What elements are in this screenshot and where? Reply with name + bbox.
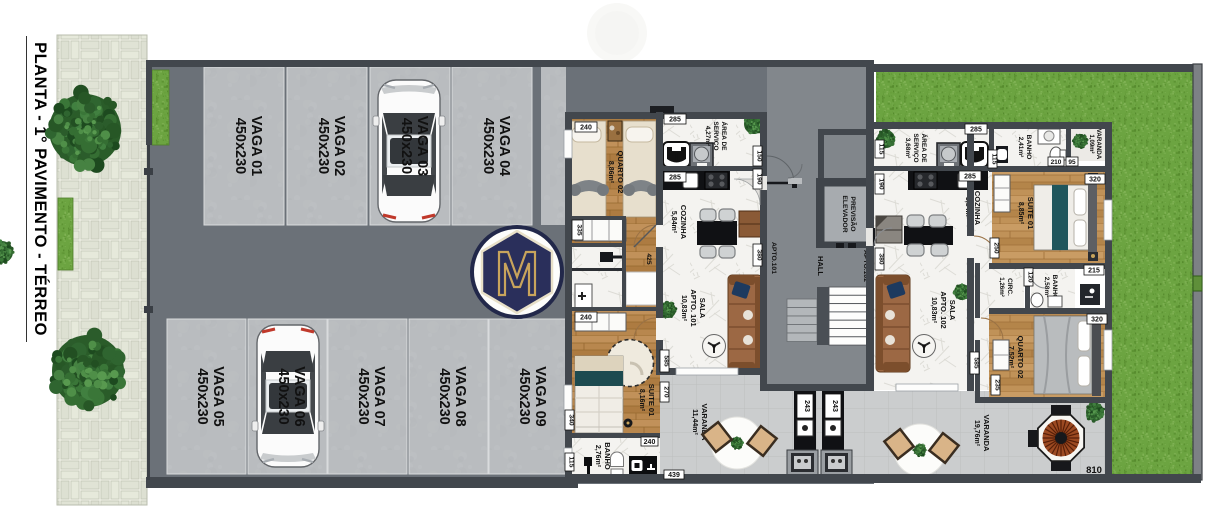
svg-text:450x230: 450x230: [355, 368, 371, 424]
svg-text:ÁREA DE: ÁREA DE: [920, 133, 929, 163]
svg-text:190: 190: [878, 178, 885, 190]
svg-text:340: 340: [568, 414, 575, 426]
svg-text:450x230: 450x230: [232, 118, 248, 174]
svg-text:810: 810: [1086, 465, 1102, 476]
svg-text:150: 150: [756, 150, 763, 162]
svg-text:380: 380: [756, 249, 763, 261]
svg-text:2,76m²: 2,76m²: [594, 445, 601, 468]
svg-text:ÁREA DE: ÁREA DE: [720, 121, 729, 151]
svg-text:VAGA 03: VAGA 03: [414, 116, 430, 176]
svg-text:VAGA 02: VAGA 02: [331, 116, 347, 176]
svg-text:VAGA 01: VAGA 01: [248, 116, 264, 176]
svg-text:VAGA 07: VAGA 07: [371, 366, 387, 426]
svg-text:SALA: SALA: [698, 298, 707, 319]
svg-text:285: 285: [669, 117, 681, 124]
svg-text:450x230: 450x230: [194, 368, 210, 424]
svg-text:5,84m²: 5,84m²: [670, 211, 677, 234]
svg-text:8,16m²: 8,16m²: [638, 389, 645, 412]
svg-text:270: 270: [663, 386, 670, 398]
svg-text:VAGA 09: VAGA 09: [532, 366, 548, 426]
svg-text:2,41m²: 2,41m²: [1017, 137, 1024, 158]
svg-text:10,83m²: 10,83m²: [930, 297, 937, 324]
svg-text:COZINHA: COZINHA: [973, 191, 982, 226]
svg-text:250: 250: [993, 242, 1000, 254]
svg-text:450x230: 450x230: [275, 368, 291, 424]
svg-text:QUARTO 02: QUARTO 02: [616, 151, 625, 194]
svg-text:585: 585: [973, 357, 980, 369]
svg-text:95: 95: [1068, 159, 1076, 166]
svg-text:3,68m²: 3,68m²: [904, 138, 911, 159]
svg-text:240: 240: [644, 439, 656, 446]
svg-text:450x230: 450x230: [516, 368, 532, 424]
svg-text:SERVIÇO: SERVIÇO: [712, 121, 719, 150]
svg-text:4,27m²: 4,27m²: [704, 126, 711, 147]
svg-text:SERVIÇO: SERVIÇO: [912, 133, 919, 162]
svg-text:VAGA 08: VAGA 08: [452, 366, 468, 426]
svg-text:HALL: HALL: [816, 256, 825, 276]
svg-text:QUARTO 02: QUARTO 02: [1016, 336, 1025, 379]
svg-text:8,86m²: 8,86m²: [607, 161, 614, 184]
svg-text:1,09m²: 1,09m²: [1088, 134, 1095, 153]
svg-text:VARANDA: VARANDA: [982, 415, 991, 453]
svg-text:19,76m²: 19,76m²: [973, 420, 980, 447]
svg-text:285: 285: [970, 127, 982, 134]
svg-text:450x230: 450x230: [480, 118, 496, 174]
svg-text:SUITE 01: SUITE 01: [647, 384, 656, 417]
svg-text:380: 380: [878, 253, 885, 265]
svg-text:VAGA 05: VAGA 05: [210, 366, 226, 426]
svg-text:VAGA 04: VAGA 04: [496, 116, 512, 176]
svg-text:PLANTA - 1° PAVIMENTO - TÉRREO: PLANTA - 1° PAVIMENTO - TÉRREO: [31, 42, 50, 336]
svg-text:11,44m²: 11,44m²: [691, 409, 698, 435]
svg-text:115: 115: [991, 154, 998, 165]
svg-text:VARANDA: VARANDA: [1095, 129, 1102, 160]
svg-text:120: 120: [1027, 271, 1034, 283]
svg-text:COZINHA: COZINHA: [679, 205, 688, 240]
svg-text:320: 320: [1089, 177, 1101, 184]
svg-text:ELEVADOR: ELEVADOR: [841, 195, 848, 232]
svg-text:1,26m²: 1,26m²: [998, 277, 1005, 297]
svg-text:APTO.101: APTO.101: [770, 242, 777, 274]
svg-text:APTO. 102: APTO. 102: [939, 291, 948, 328]
svg-text:APTO. 101: APTO. 101: [689, 289, 698, 326]
svg-text:BANHO: BANHO: [1025, 135, 1032, 160]
svg-text:439: 439: [668, 472, 680, 479]
svg-text:115: 115: [878, 144, 885, 155]
svg-text:115: 115: [568, 457, 575, 468]
svg-text:215: 215: [1088, 268, 1100, 275]
svg-text:8,85m²: 8,85m²: [1017, 202, 1024, 225]
svg-text:450x230: 450x230: [436, 368, 452, 424]
svg-text:190: 190: [756, 173, 763, 185]
svg-text:450x230: 450x230: [315, 118, 331, 174]
svg-text:2,58m²: 2,58m²: [1043, 277, 1050, 298]
svg-text:335: 335: [576, 224, 583, 236]
svg-text:240: 240: [580, 125, 592, 132]
svg-text:243: 243: [803, 400, 810, 412]
svg-text:235: 235: [994, 379, 1001, 391]
svg-text:320: 320: [1091, 317, 1103, 324]
svg-text:285: 285: [669, 175, 681, 182]
svg-text:CIRC.: CIRC.: [1006, 278, 1013, 296]
svg-text:243: 243: [831, 400, 838, 412]
svg-text:SALA: SALA: [948, 300, 957, 321]
svg-text:VAGA 06: VAGA 06: [291, 366, 307, 426]
svg-text:585: 585: [663, 355, 670, 367]
svg-text:210: 210: [1051, 159, 1062, 166]
svg-text:PREVISÃO: PREVISÃO: [849, 196, 858, 231]
svg-text:450x230: 450x230: [398, 118, 414, 174]
svg-text:425: 425: [645, 253, 652, 265]
svg-text:10,83m²: 10,83m²: [680, 295, 687, 322]
svg-text:285: 285: [964, 174, 976, 181]
svg-text:240: 240: [580, 315, 592, 322]
